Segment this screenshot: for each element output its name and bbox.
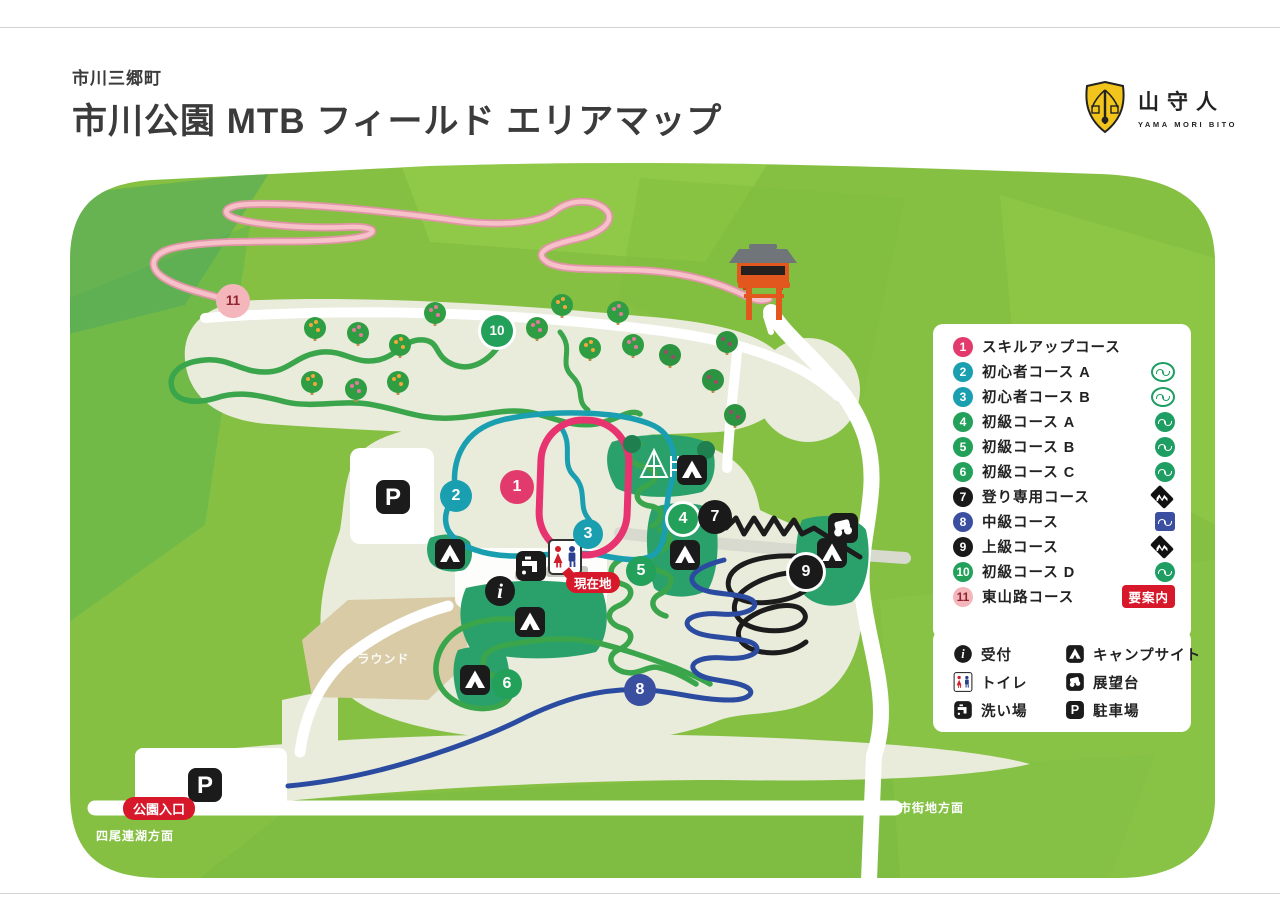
course-label: 中級コース	[982, 511, 1146, 532]
course-label: 初級コース B	[982, 436, 1146, 457]
course-legend-row: 11 東山路コース 要案内	[933, 584, 1191, 609]
course-label: 初心者コース A	[982, 361, 1142, 382]
logo-romaji: YAMA MORI BITO	[1138, 120, 1237, 129]
course-number-badge: 11	[953, 587, 973, 607]
facility-row: キャンプサイト	[1065, 640, 1201, 668]
course-number-badge: 2	[953, 362, 973, 382]
page-header: 市川三郷町 市川公園 MTB フィールド エリアマップ	[72, 64, 722, 144]
facility-label: 受付	[981, 644, 1012, 665]
difficulty-icon	[1151, 387, 1175, 407]
map-marker-6: 6	[492, 669, 522, 699]
yamamoribito-logo: 山守人 YAMA MORI BITO	[1082, 80, 1237, 134]
course-label: 初級コース A	[982, 411, 1146, 432]
course-label: スキルアップコース	[982, 336, 1146, 357]
course-number-badge: 3	[953, 387, 973, 407]
facility-row: 受付	[953, 640, 1065, 668]
reception-icon	[485, 576, 515, 606]
course-number-badge: 10	[953, 562, 973, 582]
map-marker-5: 5	[626, 556, 656, 586]
logo-text: 山守人 YAMA MORI BITO	[1138, 86, 1237, 129]
course-label: 登り専用コース	[982, 486, 1140, 507]
difficulty-icon	[1150, 484, 1174, 508]
shield-logo-icon	[1082, 80, 1128, 134]
course-legend-row: 10 初級コース D	[933, 559, 1191, 584]
logo-kanji: 山守人	[1138, 86, 1237, 116]
course-number-badge: 1	[953, 337, 973, 357]
current-location-badge: 現在地	[566, 572, 620, 593]
course-legend-row: 2 初心者コース A	[933, 359, 1191, 384]
guide-required-badge: 要案内	[1122, 585, 1175, 608]
park-entrance-badge: 公園入口	[123, 797, 195, 820]
course-legend-row: 3 初心者コース B	[933, 384, 1191, 409]
course-legend-row: 9 上級コース	[933, 534, 1191, 559]
facility-row: 展望台	[1065, 668, 1201, 696]
difficulty-icon	[1151, 362, 1175, 382]
page-title: 市川公園 MTB フィールド エリアマップ	[72, 93, 722, 144]
course-legend-row: 5 初級コース B	[933, 434, 1191, 459]
observation-icon	[1065, 672, 1085, 692]
facility-row: トイレ	[953, 668, 1065, 696]
difficulty-icon	[1150, 534, 1174, 558]
facility-legend: 受付 トイレ 洗い場 キャンプサイト 展望台 駐車場	[933, 630, 1191, 732]
course-number-badge: 6	[953, 462, 973, 482]
course-number-badge: 5	[953, 437, 973, 457]
map-marker-4: 4	[668, 504, 698, 534]
course-number-badge: 7	[953, 487, 973, 507]
observation-deck-icon	[828, 513, 858, 543]
facility-label: 洗い場	[981, 700, 1028, 721]
facility-label: 駐車場	[1093, 700, 1140, 721]
map-marker-11: 11	[216, 284, 250, 318]
course-label: 東山路コース	[982, 586, 1113, 607]
course-legend: 1 スキルアップコース 2 初心者コース A 3 初心者コース B 4 初級コー…	[933, 324, 1191, 639]
course-label: 上級コース	[982, 536, 1140, 557]
course-legend-row: 7 登り専用コース	[933, 484, 1191, 509]
course-label: 初心者コース B	[982, 386, 1142, 407]
parking-icon	[1065, 700, 1085, 720]
map-marker-2: 2	[440, 480, 472, 512]
course-legend-row: 1 スキルアップコース	[933, 334, 1191, 359]
course-label: 初級コース C	[982, 461, 1146, 482]
course-number-badge: 8	[953, 512, 973, 532]
difficulty-icon	[1155, 462, 1175, 482]
municipality-name: 市川三郷町	[72, 64, 722, 89]
map-marker-9: 9	[789, 555, 823, 589]
facility-row: 駐車場	[1065, 696, 1201, 724]
ground-label: グラウンド	[332, 650, 422, 667]
facility-label: トイレ	[981, 672, 1028, 693]
difficulty-icon	[1155, 412, 1175, 432]
course-legend-row: 8 中級コース	[933, 509, 1191, 534]
difficulty-icon	[1155, 562, 1175, 582]
facility-row: 洗い場	[953, 696, 1065, 724]
course-legend-row: 6 初級コース C	[933, 459, 1191, 484]
facility-label: キャンプサイト	[1093, 644, 1201, 665]
to-lake-label: 四尾連湖方面	[96, 827, 174, 844]
course-label: 初級コース D	[982, 561, 1146, 582]
map-marker-10: 10	[481, 315, 513, 347]
map-marker-3: 3	[573, 519, 603, 549]
facility-label: 展望台	[1093, 672, 1140, 693]
to-city-label: 市街地方面	[899, 799, 964, 816]
wash-icon	[953, 700, 973, 720]
tent-icon	[1065, 644, 1085, 664]
course-number-badge: 9	[953, 537, 973, 557]
map-marker-1: 1	[500, 470, 534, 504]
map-marker-7: 7	[698, 500, 732, 534]
course-number-badge: 4	[953, 412, 973, 432]
difficulty-icon	[1155, 437, 1175, 457]
course-legend-row: 4 初級コース A	[933, 409, 1191, 434]
wash-station-icon	[516, 551, 546, 581]
difficulty-icon	[1155, 512, 1175, 531]
info-icon	[953, 644, 973, 664]
toilet-icon	[953, 672, 973, 692]
map-marker-8: 8	[624, 674, 656, 706]
